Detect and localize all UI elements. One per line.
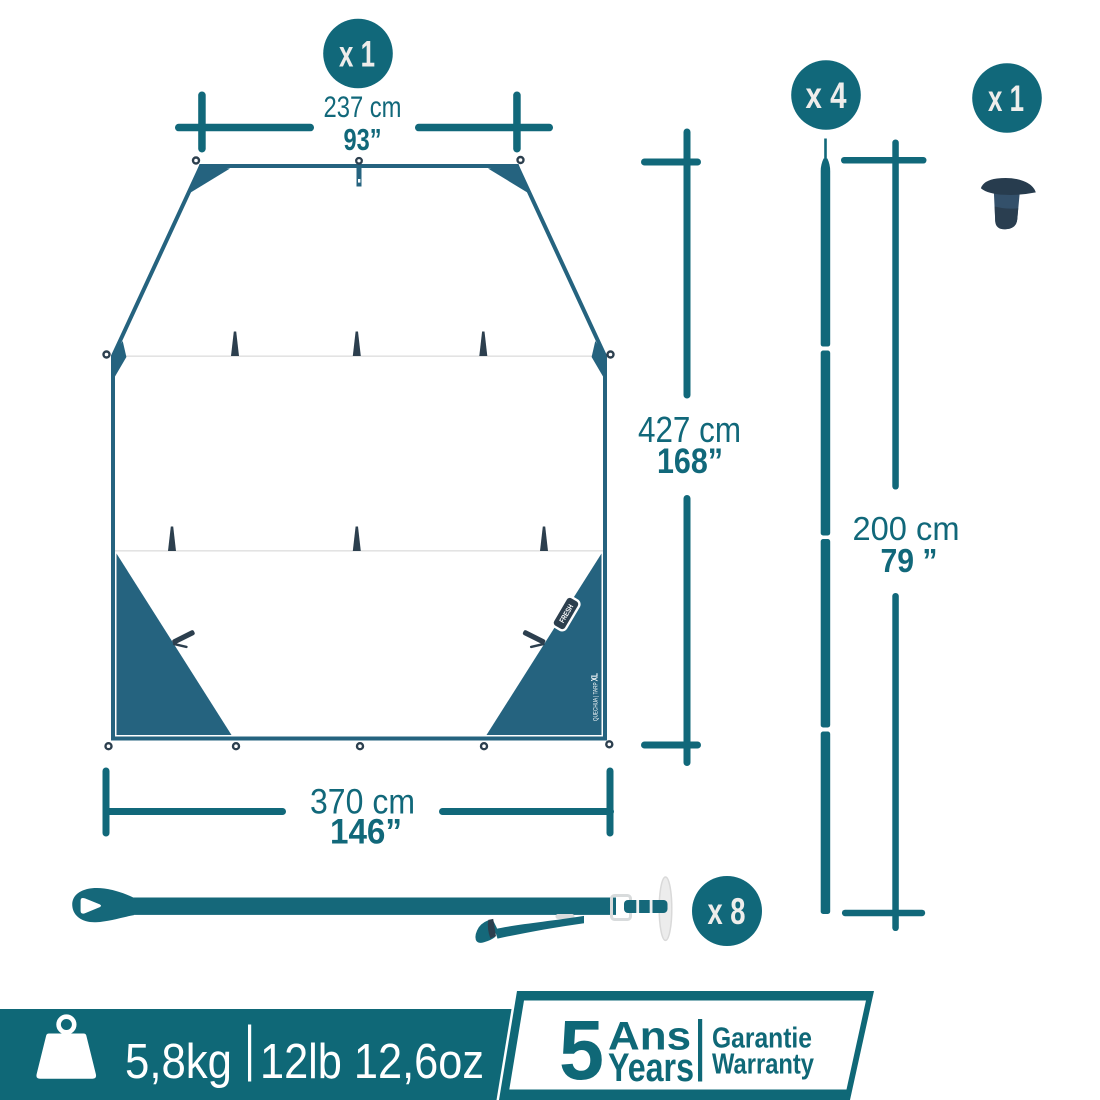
svg-text:168”: 168” (657, 442, 723, 481)
svg-text:x 8: x 8 (708, 891, 746, 932)
svg-text:93”: 93” (344, 122, 382, 157)
svg-text:Years: Years (608, 1046, 694, 1090)
svg-text:5,8kg: 5,8kg (125, 1035, 232, 1089)
svg-text:x 4: x 4 (806, 75, 847, 116)
svg-text:x 1: x 1 (988, 78, 1024, 119)
svg-text:146”: 146” (330, 813, 402, 852)
svg-text:x 1: x 1 (339, 34, 375, 75)
svg-text:79 ”: 79 ” (881, 542, 938, 579)
svg-text:Warranty: Warranty (712, 1049, 814, 1081)
svg-text:237 cm: 237 cm (324, 91, 402, 124)
svg-text:5: 5 (559, 1003, 604, 1097)
svg-text:12lb 12,6oz: 12lb 12,6oz (260, 1035, 484, 1089)
